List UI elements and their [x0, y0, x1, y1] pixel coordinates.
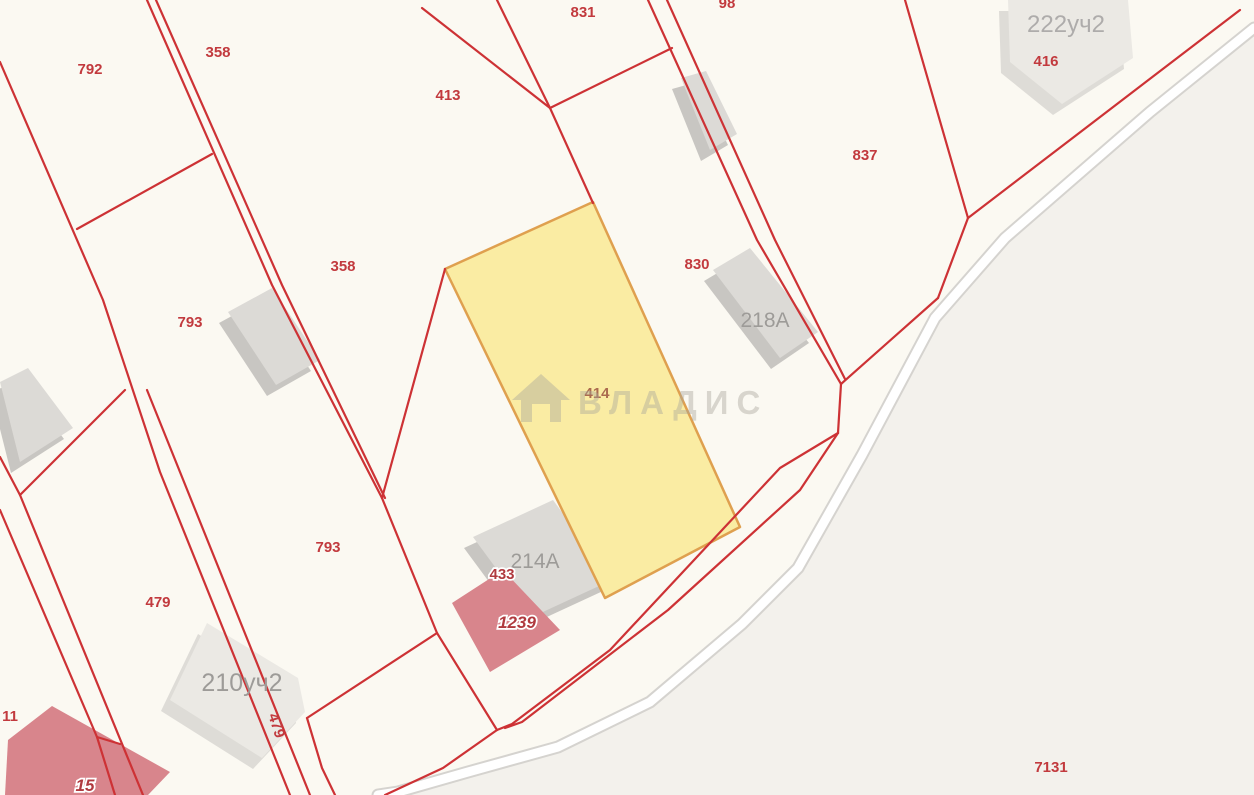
parcel-label-358[interactable]: 358: [330, 258, 355, 275]
parcel-label-793[interactable]: 793: [315, 539, 340, 556]
parcel-label-416[interactable]: 416: [1033, 53, 1058, 70]
parcel-label-831[interactable]: 831: [570, 4, 595, 21]
parcel-label-210уч2[interactable]: 210уч2: [201, 669, 282, 697]
parcel-label-222уч2[interactable]: 222уч2: [1027, 11, 1105, 38]
parcel-label-98[interactable]: 98: [719, 0, 736, 12]
cadastral-map[interactable]: 7923584138319883741635879383079347947911…: [0, 0, 1254, 795]
watermark-text: ВЛАДИС: [578, 384, 768, 421]
parcel-label-15[interactable]: 15: [76, 776, 95, 795]
parcel-label-7131[interactable]: 7131: [1034, 759, 1067, 776]
parcel-label-413[interactable]: 413: [435, 87, 460, 104]
parcel-label-11[interactable]: 11: [2, 708, 18, 725]
parcel-label-214А[interactable]: 214А: [510, 550, 559, 573]
parcel-label-1239[interactable]: 1239: [498, 613, 536, 632]
parcel-label-837[interactable]: 837: [852, 147, 877, 164]
parcel-label-358[interactable]: 358: [205, 44, 230, 61]
parcel-label-792[interactable]: 792: [77, 61, 102, 78]
cadastral-map-viewport[interactable]: 7923584138319883741635879383079347947911…: [0, 0, 1254, 795]
parcel-label-479[interactable]: 479: [145, 594, 170, 611]
parcel-label-218А[interactable]: 218А: [740, 309, 789, 332]
parcel-label-793[interactable]: 793: [177, 314, 202, 331]
parcel-label-433[interactable]: 433: [489, 566, 514, 583]
parcel-label-830[interactable]: 830: [684, 256, 709, 273]
